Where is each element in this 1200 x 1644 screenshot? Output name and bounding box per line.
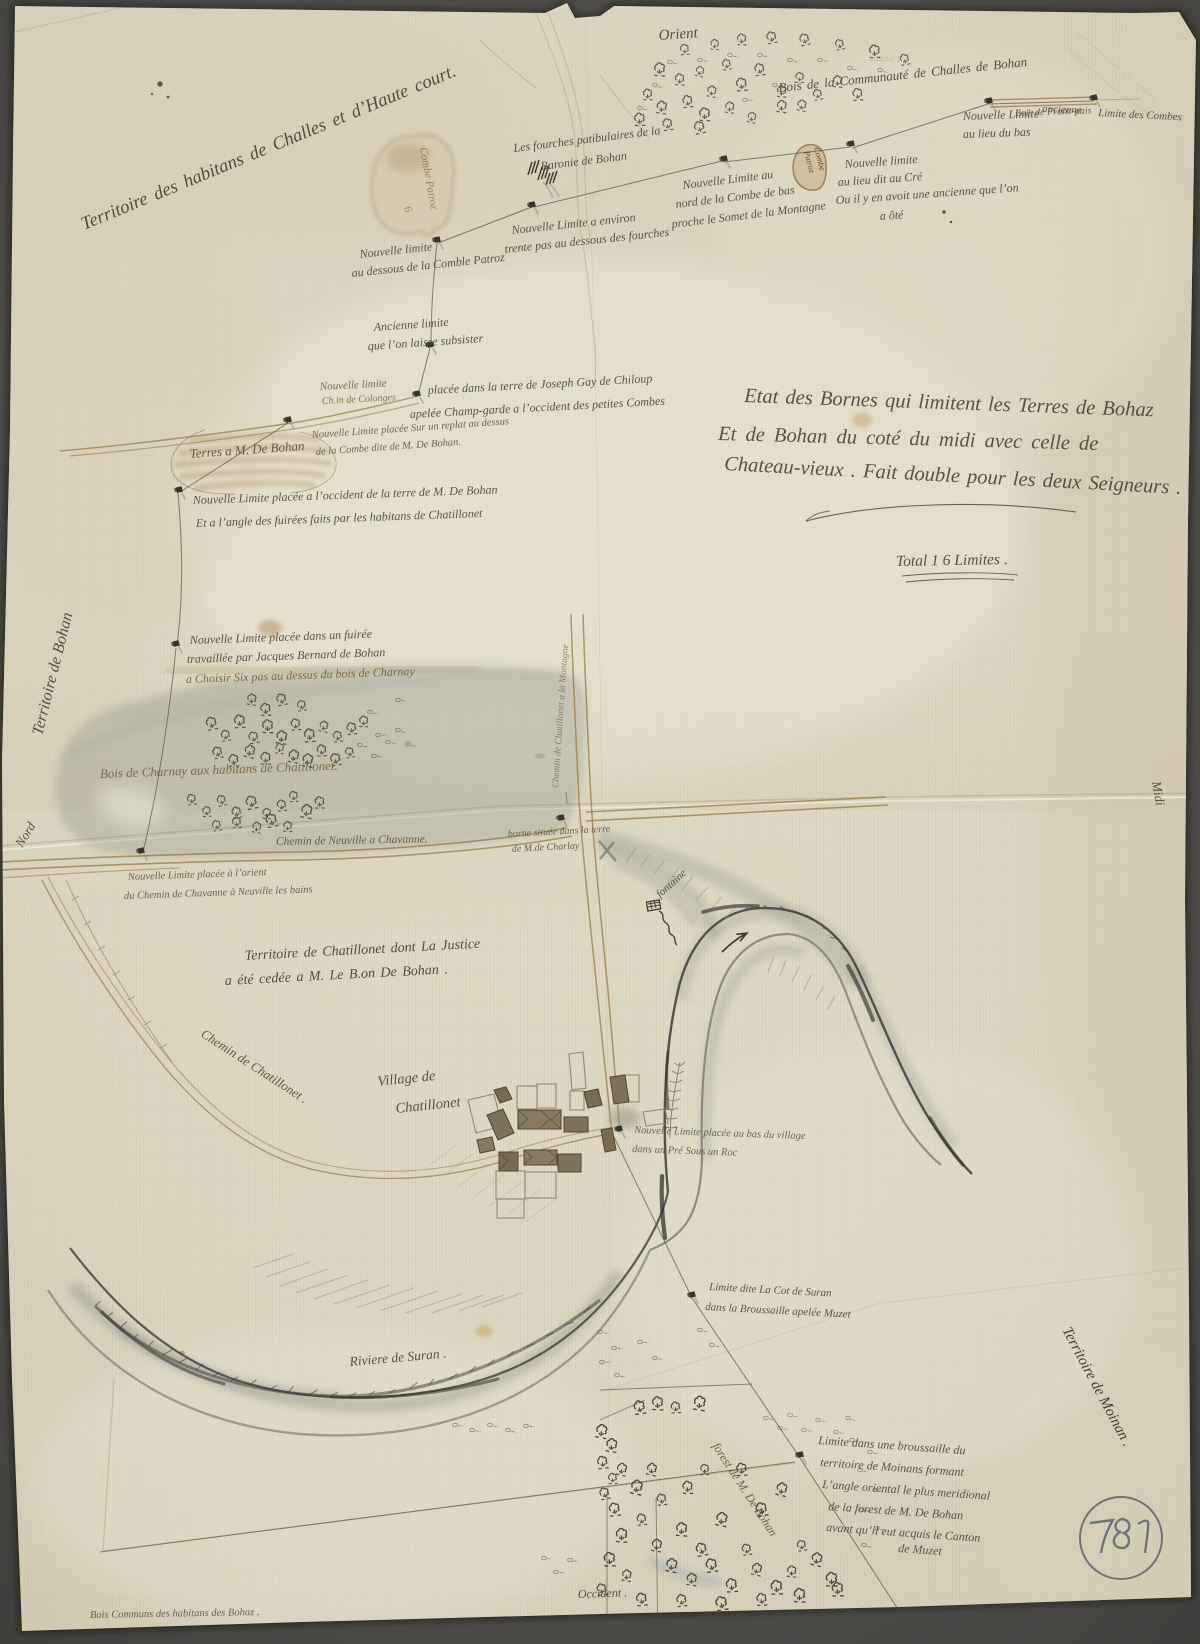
svg-text:Occident .: Occident .	[578, 1585, 628, 1601]
svg-text:ancienne: ancienne	[1042, 103, 1082, 116]
svg-text:Orient: Orient	[658, 25, 699, 44]
svg-text:Total 1 6 Limites .: Total 1 6 Limites .	[896, 551, 1008, 570]
svg-text:Lironne: Lironne	[868, 53, 901, 65]
svg-text:au lieu du bas: au lieu du bas	[963, 125, 1031, 141]
svg-text:a ôté: a ôté	[879, 207, 904, 223]
